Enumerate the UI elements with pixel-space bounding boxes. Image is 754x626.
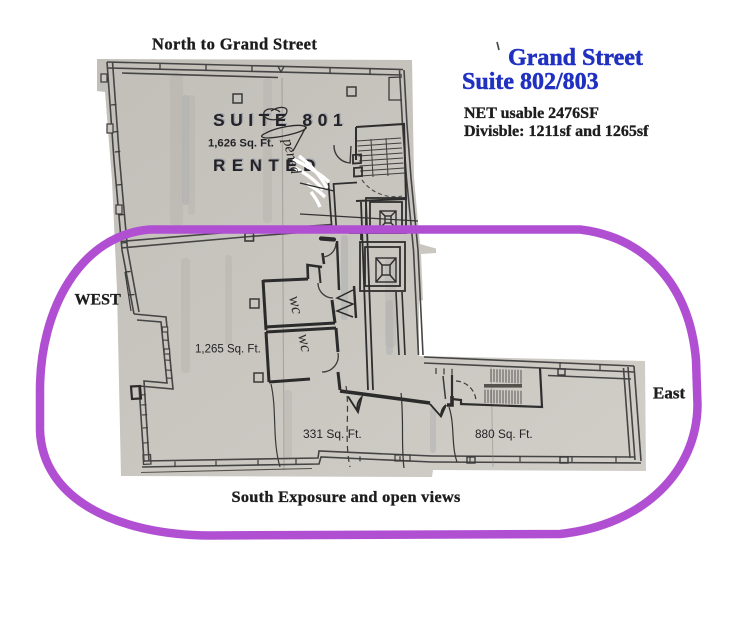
svg-text:Grand Street: Grand Street — [508, 45, 643, 71]
svg-text:1,265 Sq. Ft.: 1,265 Sq. Ft. — [195, 344, 261, 356]
svg-text:Divisble: 1211sf and 1265sf: Divisble: 1211sf and 1265sf — [464, 123, 649, 140]
svg-text:East: East — [653, 384, 685, 403]
svg-text:South Exposure and open views: South Exposure and open views — [232, 487, 461, 506]
svg-text:NET usable 2476SF: NET usable 2476SF — [464, 105, 599, 122]
svg-text:331 Sq. Ft.: 331 Sq. Ft. — [303, 427, 362, 441]
svg-text:Suite 802/803: Suite 802/803 — [462, 69, 599, 95]
svg-text:1,626 Sq. Ft.: 1,626 Sq. Ft. — [208, 138, 274, 150]
svg-text:North to Grand Street: North to Grand Street — [152, 35, 317, 54]
svg-text:WEST: WEST — [75, 292, 122, 309]
svg-text:880 Sq. Ft.: 880 Sq. Ft. — [475, 427, 533, 441]
svg-text:SUITE 801: SUITE 801 — [213, 110, 348, 130]
